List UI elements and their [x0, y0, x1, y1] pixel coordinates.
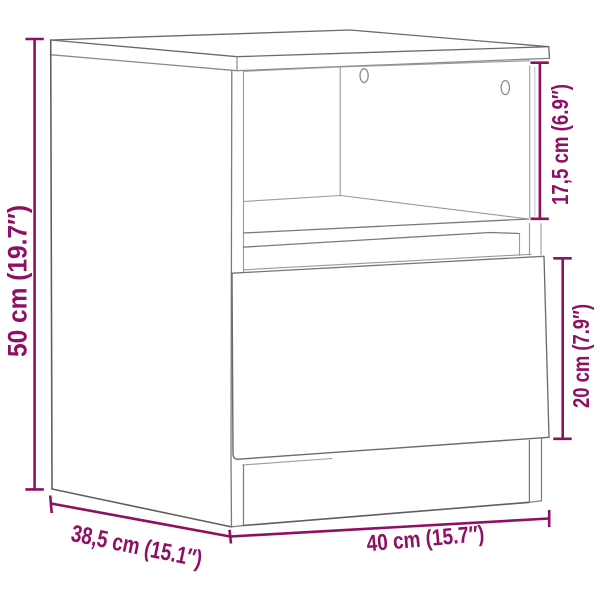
svg-text:20 cm (7.9″): 20 cm (7.9″)	[568, 304, 594, 408]
svg-text:17,5 cm (6.9″): 17,5 cm (6.9″)	[547, 84, 573, 205]
svg-text:50 cm (19.7″): 50 cm (19.7″)	[3, 205, 33, 357]
svg-text:40 cm (15.7″): 40 cm (15.7″)	[365, 520, 485, 556]
